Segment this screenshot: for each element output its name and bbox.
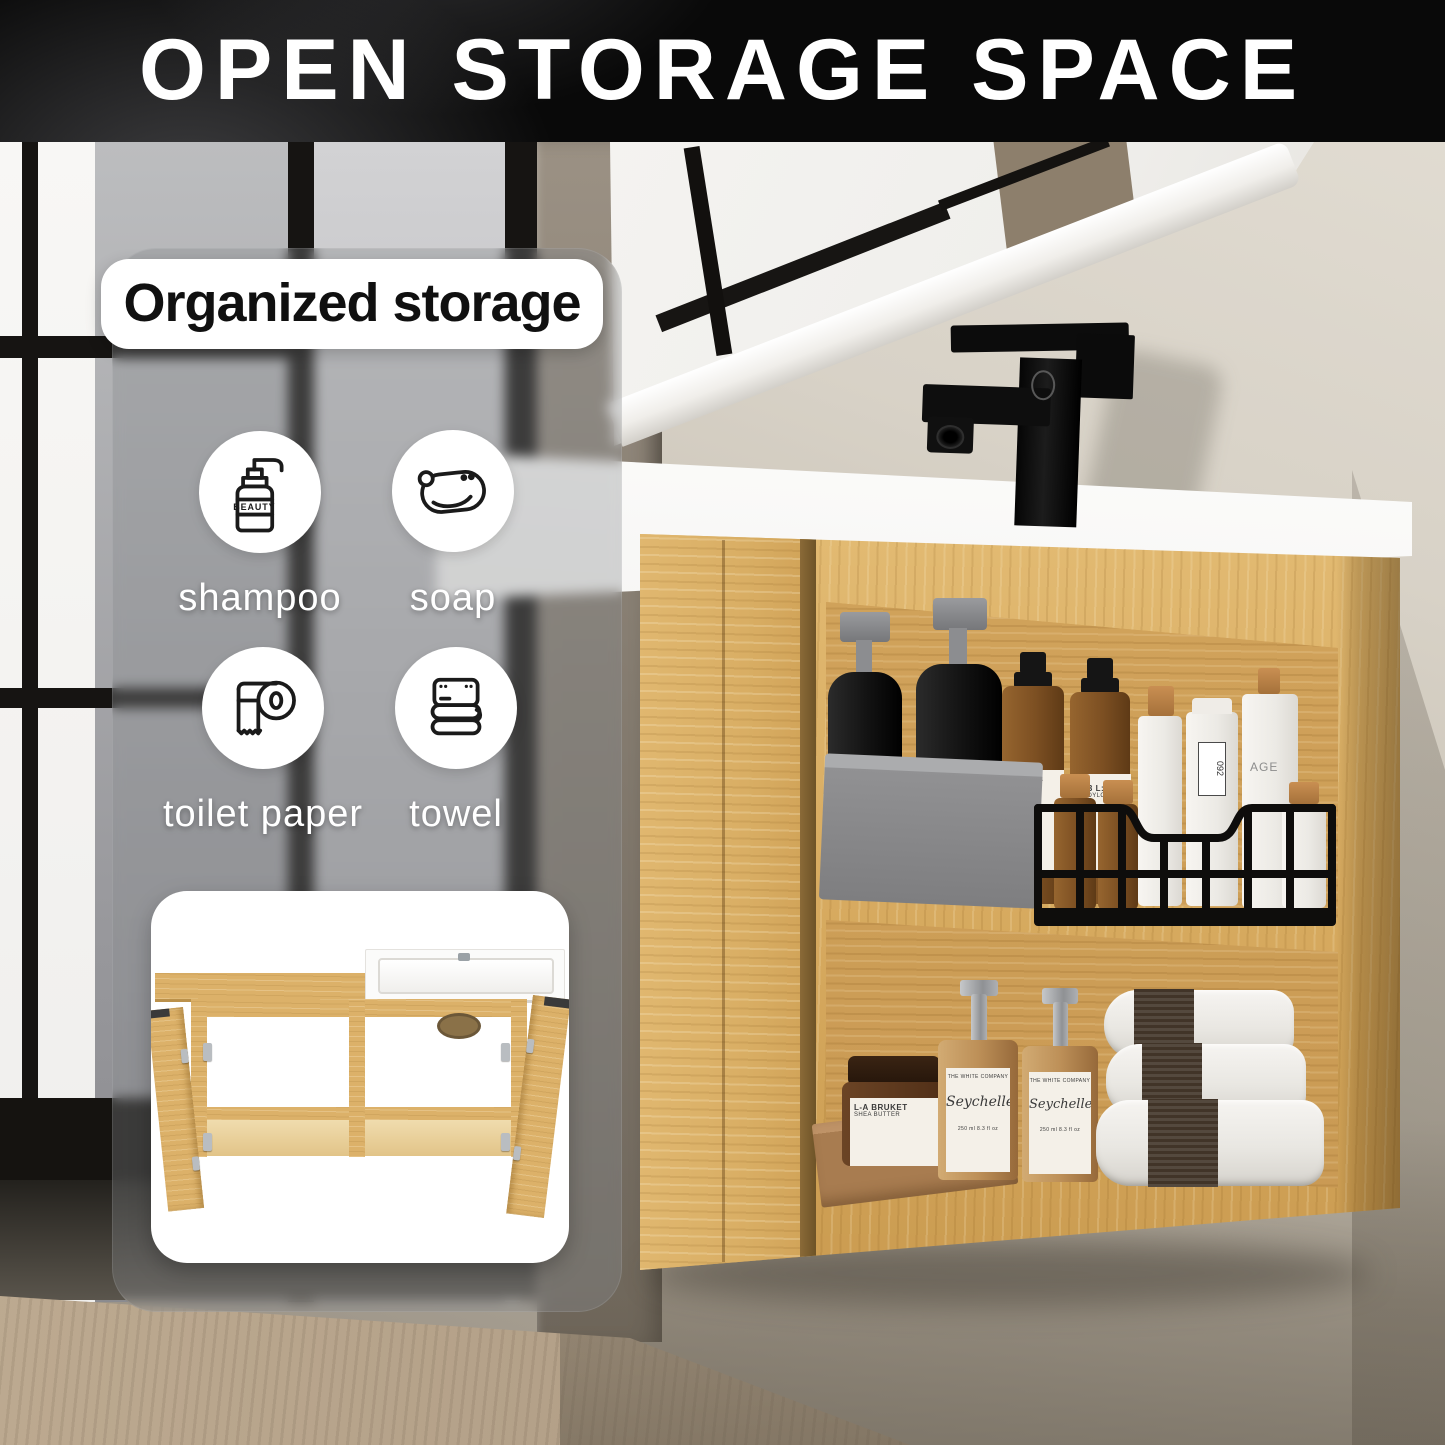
inset-faucet-hole — [458, 953, 470, 961]
black-wire-basket — [1032, 784, 1338, 936]
panel-heading-pill: Organized storage — [101, 259, 603, 349]
door-seam — [722, 540, 725, 1262]
label-soap: soap — [293, 577, 613, 620]
organized-storage-panel: Organized storage BEAUTY — [112, 248, 622, 1312]
folded-towel-bottom — [1096, 1100, 1324, 1186]
amber-soap-dispenser-2: THE WHITE COMPANY Seychelles 250 ml 8.3 … — [1022, 988, 1098, 1182]
label-towel: towel — [296, 793, 616, 836]
inset-hinge-3 — [501, 1043, 510, 1061]
toilet-paper-icon-circle — [202, 647, 324, 769]
inset-hinge-2 — [203, 1133, 212, 1151]
inset-hinge-4 — [501, 1133, 510, 1151]
gray-storage-box — [819, 753, 1043, 908]
inset-countertop — [155, 973, 367, 1002]
inset-shelf-left — [207, 1107, 349, 1120]
panel-heading: Organized storage — [101, 259, 603, 347]
soap-bar-icon — [406, 442, 500, 540]
towel-icon-circle — [395, 647, 517, 769]
inset-shelf-floor-left — [207, 1120, 349, 1156]
door-gap-shadow — [800, 536, 816, 1266]
svg-text:BEAUTY: BEAUTY — [233, 502, 275, 512]
shampoo-pump-bottle-icon: BEAUTY — [213, 443, 307, 541]
soap-icon-circle — [392, 430, 514, 552]
title-banner: OPEN STORAGE SPACE — [0, 0, 1445, 142]
cabinet-side-doors — [640, 534, 816, 1270]
black-faucet — [918, 312, 1155, 525]
amber-soap-dispenser-1: THE WHITE COMPANY Seychelles 250 ml 8.3 … — [938, 980, 1018, 1180]
product-marketing-image: 123 L:A BODYLOT 092 092 123 L:A BODYLOT … — [0, 0, 1445, 1445]
brown-cream-jar: L-A BRUKET SHEA BUTTER — [842, 1056, 946, 1166]
page-title: OPEN STORAGE SPACE — [0, 0, 1445, 140]
vanity-open-doors-inset — [151, 891, 569, 1263]
faucet-handle-block — [1075, 333, 1135, 399]
inset-shelf-floor-right — [365, 1120, 511, 1156]
inset-hinge-1 — [203, 1043, 212, 1061]
toilet-paper-roll-icon — [216, 659, 310, 757]
folded-towel-icon — [409, 659, 503, 757]
faucet-nozzle — [927, 416, 974, 454]
inset-center-stile — [349, 1001, 365, 1157]
inset-drain-hole — [437, 1013, 481, 1039]
cabinet-right-shading — [1336, 534, 1400, 1270]
inset-shelf-right — [365, 1107, 511, 1120]
shampoo-icon-circle: BEAUTY — [199, 431, 321, 553]
